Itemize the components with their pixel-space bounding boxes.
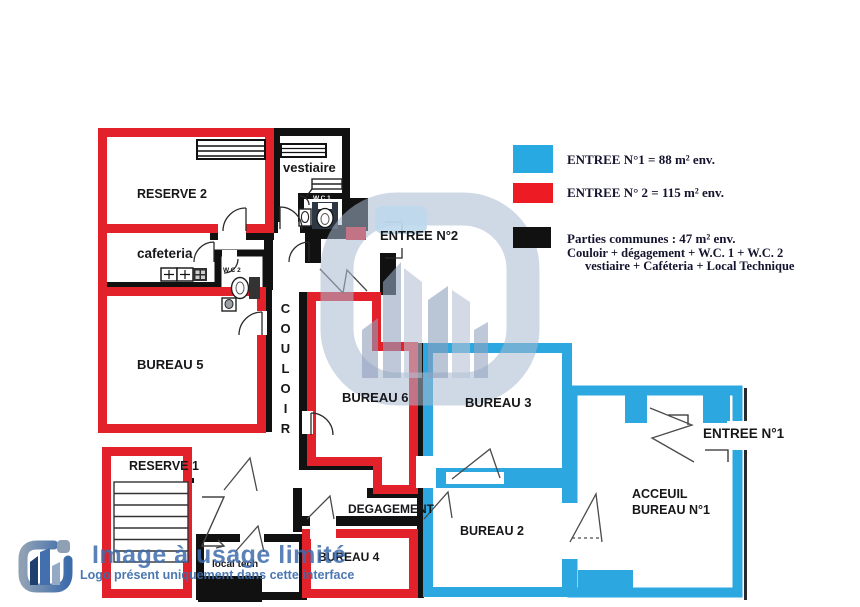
wc1-toilet-icon — [312, 202, 338, 229]
legend: ENTREE N°1 = 88 m² env. ENTREE N° 2 = 11… — [505, 138, 850, 283]
room-label-degagement: DEGAGEMENT — [348, 502, 434, 516]
watermark-subtitle: Logo présent uniquement dans cette inter… — [80, 568, 354, 582]
legend-label-entree2: ENTREE N° 2 = 115 m² env. — [567, 185, 724, 201]
room-label-bureau5: BUREAU 5 — [137, 357, 203, 372]
window-vestiaire — [281, 144, 326, 157]
watermark-title: Image à usage limité — [92, 541, 347, 570]
room-label-entree1: ENTREE N°1 — [703, 426, 784, 441]
floor-plan-page: RESERVE 2 vestiaire W.C 1 ENTREE N°2 caf… — [0, 0, 860, 607]
room-label-acceuil-line2: BUREAU N°1 — [632, 503, 710, 517]
kitchen-counter-icon — [161, 268, 207, 281]
footer-logo — [23, 540, 70, 588]
legend-detail-communes-2: vestiaire + Caféteria + Local Technique — [585, 259, 794, 274]
legend-swatch-communes — [513, 227, 551, 248]
room-label-vestiaire: vestiaire — [283, 160, 336, 175]
room-label-acceuil-line1: ACCEUIL — [632, 487, 688, 501]
window-reserve2 — [197, 140, 265, 159]
room-label-bureau3: BUREAU 3 — [465, 395, 531, 410]
wc2-sink-icon — [222, 298, 236, 311]
room-label-wc1: W.C 1 — [313, 195, 331, 202]
room-label-cafeteria: cafeteria — [137, 246, 193, 261]
room-label-wc2: W.C 2 — [223, 267, 241, 274]
legend-label-communes: Parties communes : 47 m² env. — [567, 231, 736, 247]
legend-swatch-entree1 — [513, 145, 553, 173]
room-label-couloir: COULOIR — [278, 301, 293, 441]
room-label-reserve2: RESERVE 2 — [137, 187, 207, 201]
room-label-reserve1: RESERVE 1 — [129, 459, 199, 473]
room-label-bureau2: BUREAU 2 — [460, 524, 524, 538]
legend-swatch-entree2 — [513, 183, 553, 203]
wc2-toilet-icon — [232, 277, 261, 299]
room-label-entree2: ENTREE N°2 — [380, 228, 458, 243]
legend-label-entree1: ENTREE N°1 = 88 m² env. — [567, 152, 715, 168]
room-label-bureau6: BUREAU 6 — [342, 390, 408, 405]
